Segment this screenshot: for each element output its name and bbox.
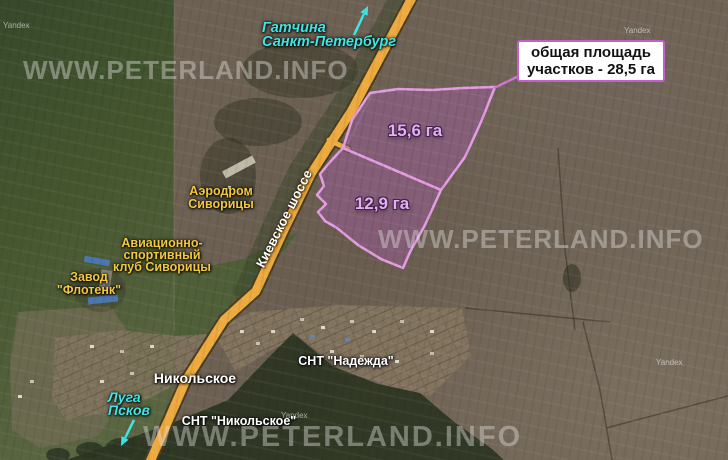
aviaclub-line3: клуб Сиворицы (113, 261, 211, 273)
plot-area-label-2: 12,9 га (355, 194, 409, 214)
map-viewport: WWW.PETERLAND.INFO WWW.PETERLAND.INFO WW… (0, 0, 728, 460)
info-box-line1: общая площадь (522, 44, 660, 61)
direction-label-south: Луга Псков (108, 391, 150, 416)
plot-area-label-1: 15,6 га (388, 121, 442, 141)
direction-label-north: Гатчина Санкт-Петербург (262, 22, 396, 49)
factory-label: Завод "Флотенк" (57, 271, 121, 297)
yandex-watermark: Yandex (624, 26, 651, 35)
aviaclub-label: Авиационно- спортивный клуб Сиворицы (113, 237, 211, 273)
village-label: Никольское (154, 370, 236, 386)
shrub-clump (563, 264, 581, 292)
total-area-info-box: общая площадь участков - 28,5 га (517, 40, 665, 82)
factory-line2: "Флотенк" (57, 284, 121, 297)
yandex-watermark: Yandex (656, 358, 683, 367)
snt-nikolskoe-label: СНТ "Никольское" (182, 414, 296, 428)
aerodrome-label: Аэродром Сиворицы (188, 185, 254, 211)
field-boundaries (465, 148, 728, 460)
direction-south-line2: Псков (108, 404, 150, 417)
yandex-watermark: Yandex (281, 411, 308, 420)
aerodrome-line2: Сиворицы (188, 198, 254, 211)
snt-nadezhda-label: СНТ "Надежда" (298, 354, 393, 368)
info-box-line2: участков - 28,5 га (522, 61, 660, 78)
info-box-leader-line (494, 76, 519, 88)
yandex-watermark: Yandex (3, 21, 30, 30)
direction-north-line2: Санкт-Петербург (262, 36, 396, 50)
